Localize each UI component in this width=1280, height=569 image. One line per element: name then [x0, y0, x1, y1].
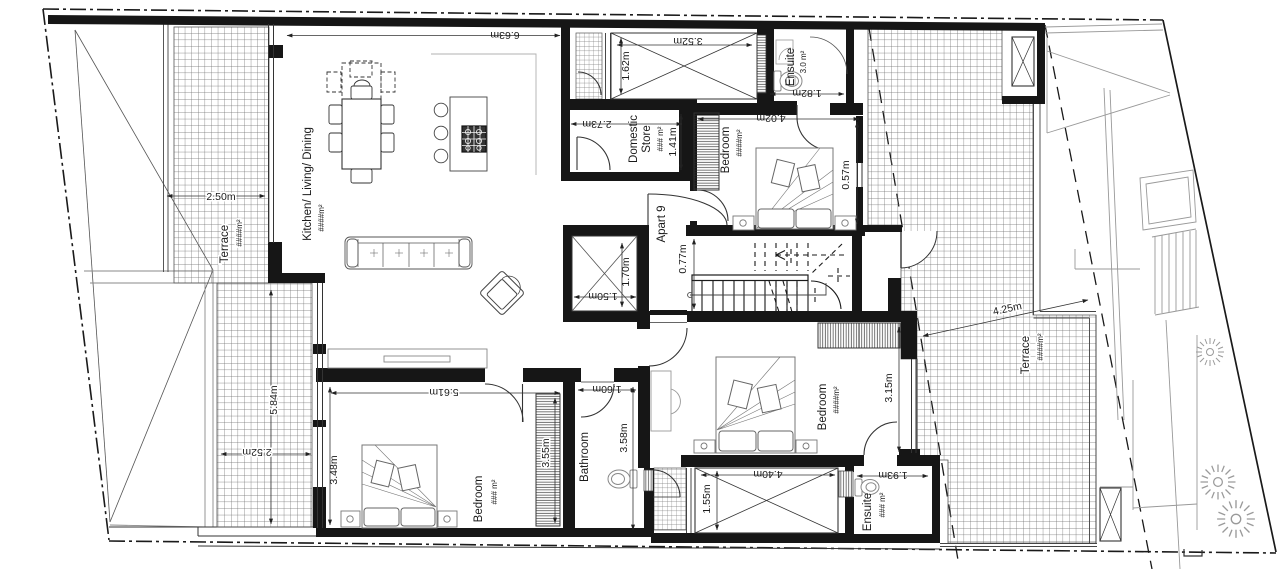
svg-text:1.70m: 1.70m — [620, 257, 632, 286]
svg-text:1.60m: 1.60m — [592, 383, 621, 395]
svg-text:3.48m: 3.48m — [328, 455, 340, 484]
svg-text:####m²: ####m² — [235, 219, 244, 246]
svg-text:### m²: ### m² — [490, 479, 499, 504]
svg-text:####m²: ####m² — [317, 204, 326, 231]
svg-text:Bedroom: Bedroom — [817, 384, 829, 431]
svg-text:Terrace: Terrace — [1020, 336, 1032, 374]
svg-text:1.93m: 1.93m — [878, 469, 907, 481]
svg-text:####m²: ####m² — [1036, 333, 1045, 360]
svg-text:1.41m: 1.41m — [667, 127, 679, 156]
svg-text:4.40m: 4.40m — [753, 468, 782, 480]
svg-text:2.52m: 2.52m — [242, 446, 271, 458]
svg-text:3.15m: 3.15m — [883, 373, 895, 402]
svg-text:3.55m: 3.55m — [540, 438, 552, 467]
svg-text:3.58m: 3.58m — [618, 423, 630, 452]
svg-text:2.73m: 2.73m — [582, 118, 611, 130]
svg-text:Bedroom: Bedroom — [473, 476, 485, 523]
svg-text:6.63m: 6.63m — [490, 29, 519, 41]
svg-text:0.77m: 0.77m — [677, 244, 689, 273]
svg-text:####m²: ####m² — [735, 129, 744, 156]
svg-text:0.57m: 0.57m — [840, 160, 852, 189]
svg-text:Domestic: Domestic — [628, 115, 640, 163]
svg-text:2.50m: 2.50m — [206, 191, 235, 203]
svg-text:4.02m: 4.02m — [756, 112, 785, 124]
svg-text:Bedroom: Bedroom — [720, 127, 732, 174]
svg-text:### m²: ### m² — [656, 126, 665, 151]
svg-text:Bathroom: Bathroom — [579, 432, 591, 482]
svg-text:####m²: ####m² — [832, 386, 841, 413]
svg-text:3.52m: 3.52m — [673, 35, 702, 47]
svg-text:5.84m: 5.84m — [268, 385, 280, 414]
svg-text:1.55m: 1.55m — [701, 484, 713, 513]
svg-text:1.82m: 1.82m — [792, 87, 821, 99]
svg-text:Store: Store — [641, 125, 653, 153]
svg-text:3.0 m²: 3.0 m² — [799, 50, 808, 73]
svg-text:5.61m: 5.61m — [429, 386, 458, 398]
svg-text:Ensuite: Ensuite — [785, 48, 797, 86]
svg-text:1.50m: 1.50m — [588, 290, 617, 302]
svg-text:### m²: ### m² — [878, 492, 887, 517]
svg-text:Apart 9: Apart 9 — [656, 205, 668, 242]
svg-text:1.62m: 1.62m — [620, 51, 632, 80]
svg-text:Terrace: Terrace — [219, 225, 231, 263]
svg-text:Kitchen/ Living/ Dining: Kitchen/ Living/ Dining — [302, 127, 314, 241]
svg-text:Ensuite: Ensuite — [862, 493, 874, 531]
